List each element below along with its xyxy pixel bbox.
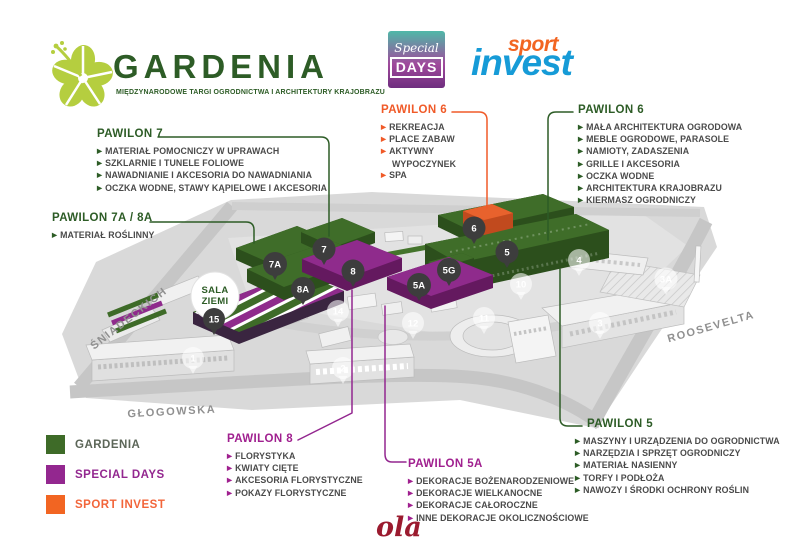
svg-text:ZIEMI: ZIEMI (202, 296, 229, 307)
callout-item: MATERIAŁ ROŚLINNY (52, 230, 155, 242)
callout-item: NAWADNIANIE I AKCESORIA DO NAWADNIANIA (97, 170, 327, 182)
callout-item: DEKORACJE BOŻENARODZENIOWE (408, 476, 589, 488)
svg-text:6: 6 (471, 223, 476, 234)
sport-invest-color-swatch (46, 495, 65, 514)
callout-item: AKCESORIA FLORYSTYCZNE (227, 475, 363, 487)
callout-item: SZKLARNIE I TUNELE FOLIOWE (97, 158, 327, 170)
svg-text:5G: 5G (443, 265, 456, 276)
callout-item: OCZKA WODNE (578, 171, 742, 183)
svg-text:10: 10 (516, 279, 527, 290)
legend-label: GARDENIA (75, 439, 140, 451)
callout-item: AKTYWNY WYPOCZYNEK (381, 146, 482, 169)
callout-item: MAŁA ARCHITEKTURA OGRODOWA (578, 122, 742, 134)
svg-text:4: 4 (576, 255, 582, 266)
gardenia-flower-icon (44, 34, 116, 110)
callout-title: PAWILON 6 (578, 104, 742, 116)
gardenia-logo-subtitle: MIĘDZYNARODOWE TARGI OGRODNICTWA I ARCHI… (116, 87, 385, 96)
callout-title: PAWILON 8 (227, 433, 363, 445)
callout-item: TORFY I PODŁOŻA (575, 473, 780, 485)
special-days-word1: Special (394, 41, 439, 55)
svg-text:3: 3 (597, 318, 602, 329)
callout-pawilon-5a: PAWILON 5A DEKORACJE BOŻENARODZENIOWE DE… (408, 458, 589, 525)
callout-pawilon-7a-8a: PAWILON 7A / 8A MATERIAŁ ROŚLINNY (52, 212, 155, 242)
callout-title: PAWILON 7 (97, 128, 327, 140)
callout-item: OCZKA WODNE, STAWY KĄPIELOWE I AKCESORIA (97, 183, 327, 195)
callout-item: DEKORACJE CAŁOROCZNE (408, 500, 589, 512)
street-label-glogowska: GŁOGOWSKA (127, 404, 216, 421)
svg-text:8A: 8A (297, 284, 309, 295)
svg-text:8: 8 (350, 266, 355, 277)
callout-item: MASZYNY I URZĄDZENIA DO OGRODNICTWA (575, 436, 780, 448)
gardenia-logo-title: GARDENIA (113, 48, 329, 86)
callout-pawilon-7: PAWILON 7 MATERIAŁ POMOCNICZY W UPRAWACH… (97, 128, 327, 195)
callout-item: NAMIOTY, ZADASZENIA (578, 146, 742, 158)
callout-item: POKAZY FLORYSTYCZNE (227, 488, 363, 500)
callout-title: PAWILON 6 (381, 104, 482, 116)
svg-text:14: 14 (333, 306, 344, 317)
callout-item: NAWOZY I ŚRODKI OCHRONY ROŚLIN (575, 485, 780, 497)
gardenia-color-swatch (46, 435, 65, 454)
svg-text:11: 11 (479, 313, 490, 324)
svg-text:1: 1 (190, 353, 196, 364)
callout-item: ARCHITEKTURA KRAJOBRAZU (578, 183, 742, 195)
special-days-logo: Special DAYS (388, 31, 445, 88)
callout-title: PAWILON 5A (408, 458, 589, 470)
callout-pawilon-6-sport: PAWILON 6 REKREACJA PLACE ZABAW AKTYWNY … (381, 104, 482, 182)
callout-title: PAWILON 7A / 8A (52, 212, 155, 224)
callout-pawilon-6: PAWILON 6 MAŁA ARCHITEKTURA OGRODOWA MEB… (578, 104, 742, 207)
legend-item-sport-invest: SPORT INVEST (46, 495, 165, 514)
callout-item: NARZĘDZIA I SPRZĘT OGRODNICZY (575, 448, 780, 460)
callout-item: SPA (381, 170, 482, 182)
callout-item: MATERIAŁ NASIENNY (575, 460, 780, 472)
callout-item: KIERMASZ OGRODNICZY (578, 195, 742, 207)
legend-item-special-days: SPECIAL DAYS (46, 465, 165, 484)
callout-item: DEKORACJE WIELKANOCNE (408, 488, 589, 500)
sport-invest-logo-word2: invest (471, 42, 572, 84)
ola-signature: ola (376, 512, 422, 543)
svg-text:15: 15 (209, 314, 220, 325)
callout-item: KWIATY CIĘTE (227, 463, 363, 475)
svg-text:SALA: SALA (201, 285, 228, 296)
callout-item: MEBLE OGRODOWE, PARASOLE (578, 134, 742, 146)
callout-item: MATERIAŁ POMOCNICZY W UPRAWACH (97, 146, 327, 158)
special-days-color-swatch (46, 465, 65, 484)
legend-label: SPORT INVEST (75, 499, 165, 511)
callout-pawilon-5: PAWILON 5 MASZYNY I URZĄDZENIA DO OGRODN… (575, 418, 780, 497)
svg-text:5A: 5A (413, 280, 425, 291)
svg-text:2: 2 (340, 363, 345, 374)
callout-item: INNE DEKORACJE OKOLICZNOŚCIOWE (408, 513, 589, 525)
svg-text:3A: 3A (660, 274, 672, 285)
legend-item-gardenia: GARDENIA (46, 435, 140, 454)
legend-label: SPECIAL DAYS (75, 469, 165, 481)
svg-text:12: 12 (408, 318, 419, 329)
special-days-word2: DAYS (390, 57, 444, 78)
callout-item: FLORYSTYKA (227, 451, 363, 463)
svg-text:7A: 7A (269, 259, 281, 270)
callout-title: PAWILON 5 (575, 418, 780, 430)
callout-item: GRILLE I AKCESORIA (578, 159, 742, 171)
callout-pawilon-8: PAWILON 8 FLORYSTYKA KWIATY CIĘTE AKCESO… (227, 433, 363, 500)
svg-text:5: 5 (504, 247, 510, 258)
callout-item: REKREACJA (381, 122, 482, 134)
callout-item: PLACE ZABAW (381, 134, 482, 146)
svg-text:7: 7 (321, 244, 326, 255)
